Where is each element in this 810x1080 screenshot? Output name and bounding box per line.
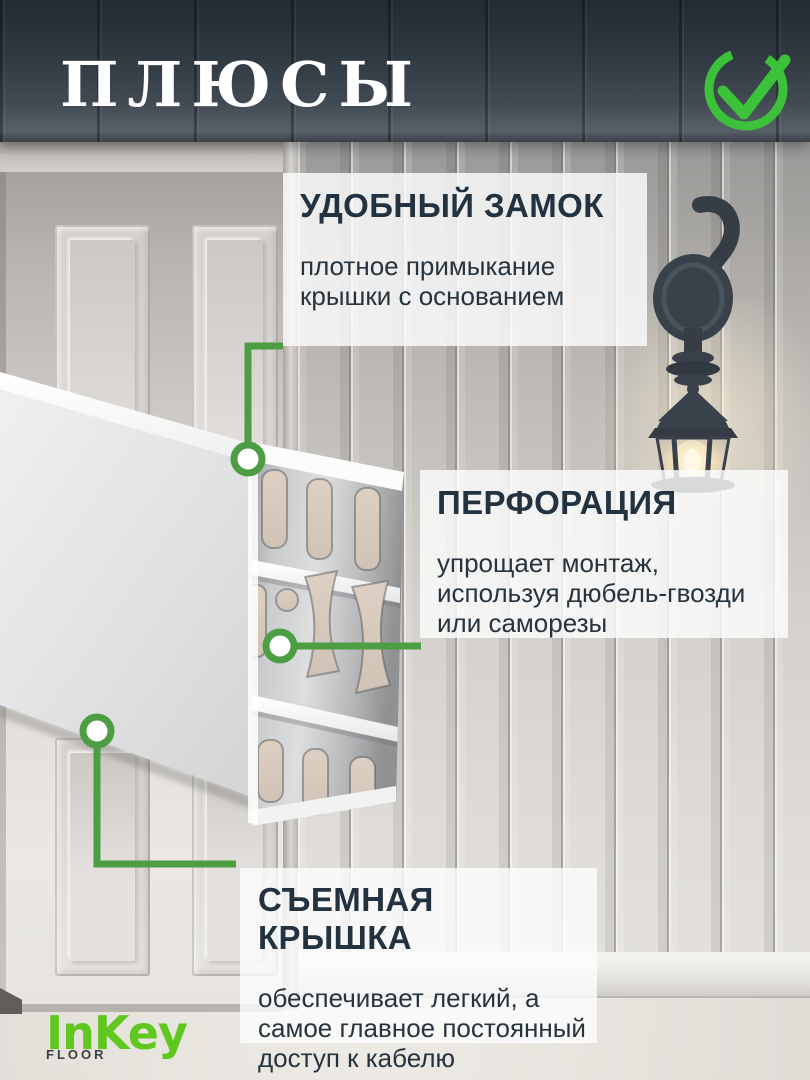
door-frame-top [0, 140, 298, 176]
callout-perforation-body-line: упрощает монтаж, [437, 548, 788, 578]
callout-removable-cover: СЪЕМНАЯ КРЫШКА обеспечивает легкий, а са… [240, 868, 597, 1043]
check-circle-icon [692, 30, 804, 142]
callout-perforation: ПЕРФОРАЦИЯ упрощает монтаж, используя дю… [420, 470, 788, 638]
callout-lock-body-line: крышки с основанием [300, 281, 647, 311]
infographic-page: ПЛЮСЫ [0, 0, 810, 1080]
page-title: ПЛЮСЫ [60, 48, 422, 121]
callout-lock-body: плотное примыкание крышки с основанием [300, 251, 647, 311]
callout-lock-body-line: плотное примыкание [300, 251, 647, 281]
callout-perforation-body: упрощает монтаж, используя дюбель-гвозди… [437, 548, 788, 638]
callout-removable-cover-heading: СЪЕМНАЯ КРЫШКА [258, 881, 597, 957]
callout-removable-cover-body-line: самое главное постоянный [258, 1013, 597, 1043]
callout-perforation-body-line: или саморезы [437, 608, 788, 638]
callout-removable-cover-body: обеспечивает легкий, а самое главное пос… [258, 983, 597, 1073]
callout-lock: УДОБНЫЙ ЗАМОК плотное примыкание крышки … [283, 173, 647, 346]
callout-perforation-body-line: используя дюбель-гвозди [437, 578, 788, 608]
brand-logo: InKey FLOOR [46, 1010, 187, 1061]
callout-perforation-heading: ПЕРФОРАЦИЯ [437, 484, 788, 522]
callout-removable-cover-body-line: доступ к кабелю [258, 1043, 597, 1073]
callout-removable-cover-body-line: обеспечивает легкий, а [258, 983, 597, 1013]
plinth-product-image [0, 355, 420, 845]
callout-lock-heading: УДОБНЫЙ ЗАМОК [300, 187, 647, 225]
